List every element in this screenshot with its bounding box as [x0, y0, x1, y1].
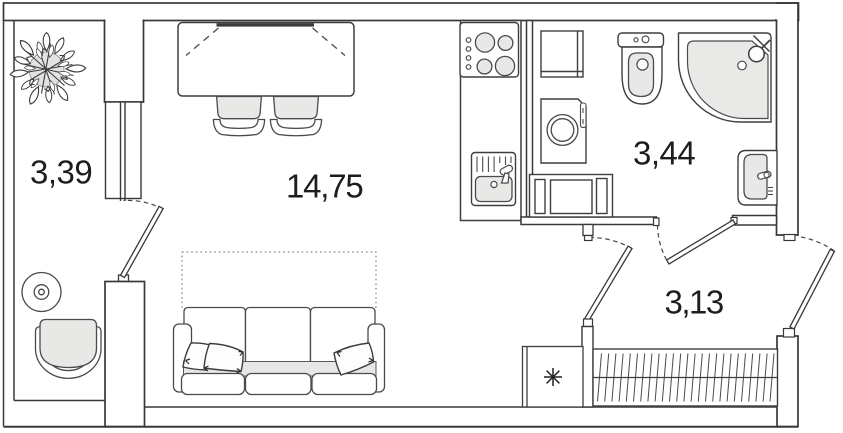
svg-text:3,44: 3,44 — [633, 135, 695, 172]
svg-text:3,13: 3,13 — [665, 284, 723, 321]
svg-text:3,39: 3,39 — [30, 154, 92, 191]
svg-text:14,75: 14,75 — [286, 168, 363, 205]
